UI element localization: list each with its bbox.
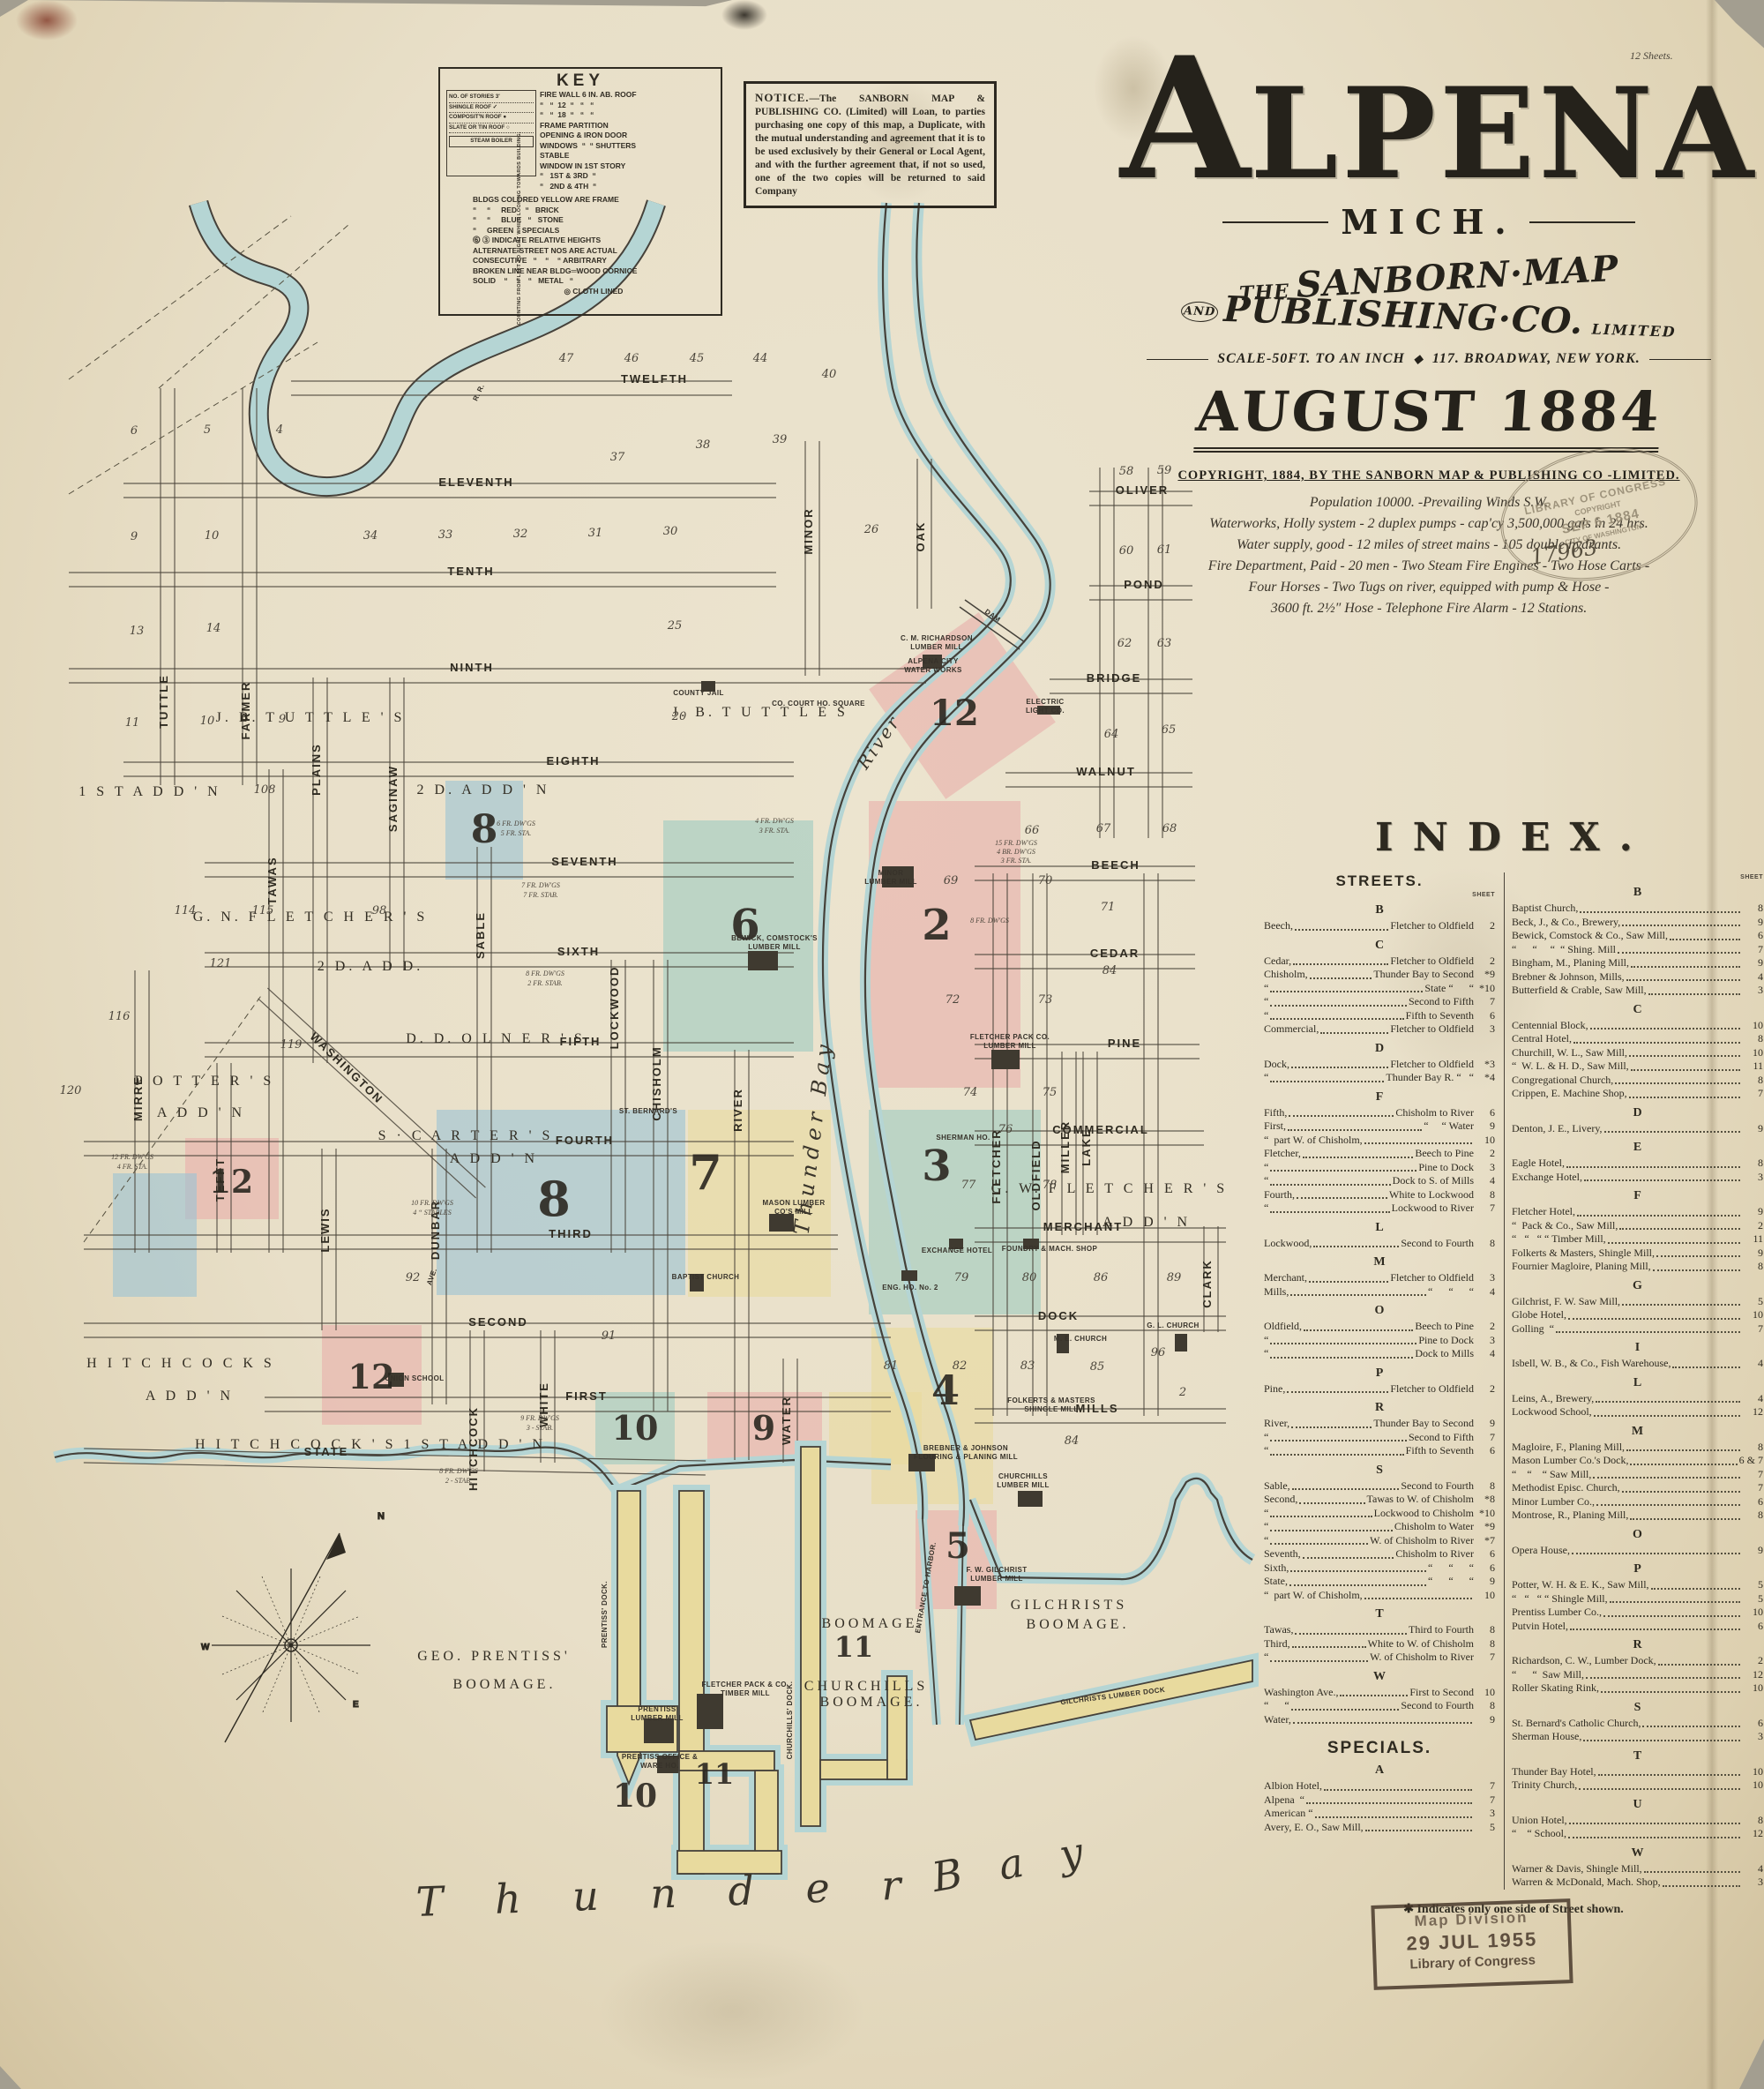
index-cell: Congregational Church, — [1512, 1074, 1613, 1088]
street-label: TWELFTH — [621, 372, 688, 386]
index-cell — [1572, 1553, 1740, 1554]
index-cell: 8 — [1742, 902, 1763, 916]
block-number: 69 — [944, 874, 959, 887]
index-row: Fifth,Chisholm to River6 — [1264, 1106, 1495, 1120]
index-cell: *4 — [1474, 1071, 1495, 1085]
index-cell: *10 — [1474, 982, 1495, 996]
index-cell: 8 — [1474, 1188, 1495, 1202]
block-number: 25 — [667, 619, 683, 633]
block-number: 10 — [200, 715, 215, 728]
index-cell: 10 — [1474, 1589, 1495, 1603]
index-cell: Mason Lumber Co.'s Dock, — [1512, 1454, 1628, 1468]
index-columns: STREETS. SHEET BBeech,Fletcher to Oldfie… — [1264, 872, 1763, 1890]
block-number: 2 — [1178, 1386, 1186, 1399]
index-row: Warner & Davis, Shingle Mill,4 — [1512, 1862, 1763, 1876]
rotated-label: CHURCHILLS' DOCK. — [786, 1681, 794, 1760]
index-cell: Exchange Hotel, — [1512, 1171, 1582, 1185]
block-number: 38 — [696, 438, 711, 452]
index-cell — [1608, 1242, 1740, 1244]
street-label: PLAINS — [310, 743, 323, 796]
index-cell: 8 — [1742, 1814, 1763, 1828]
publisher-line2: PUBLISHING·CO. — [1223, 288, 1584, 342]
index-row: Gilchrist, F. W. Saw Mill,5 — [1512, 1295, 1763, 1309]
poi-label: FOLKERTS & MASTERS — [1007, 1396, 1095, 1404]
poi-label: PRENTISS — [638, 1705, 676, 1713]
index-row: Commercial,Fletcher to Oldfield3 — [1264, 1022, 1495, 1037]
index-row: Bingham, M., Planing Mill,9 — [1512, 956, 1763, 970]
index-cell — [1270, 1543, 1368, 1545]
index-cell: Eagle Hotel, — [1512, 1157, 1565, 1171]
index-row: St. Bernard's Catholic Church,6 — [1512, 1717, 1763, 1731]
block-number: 85 — [1090, 1360, 1105, 1374]
index-cell: 10 — [1742, 1019, 1763, 1033]
index-cell: 9 — [1474, 1575, 1495, 1589]
index-cell: 10 — [1742, 1778, 1763, 1793]
index-cell: Dock to S. of Mills — [1393, 1174, 1474, 1188]
index-cell: Third to Fourth — [1409, 1623, 1474, 1637]
index-letter-heading: G — [1512, 1279, 1763, 1293]
street-label: LOCKWOOD — [608, 966, 621, 1050]
index-cell: Beech, — [1264, 919, 1293, 933]
index-cell: Second to Fifth — [1409, 1431, 1474, 1445]
index-row: Water,9 — [1264, 1713, 1495, 1727]
index-cell: 10 — [1742, 1046, 1763, 1060]
notice-body: —The SANBORN MAP & PUBLISHING CO. (Limit… — [755, 94, 985, 197]
index-row: Seventh,Chisholm to River6 — [1264, 1547, 1495, 1561]
index-cell: “ “ Water — [1424, 1119, 1474, 1134]
poi-label: F. W. GILCHRIST — [966, 1566, 1027, 1574]
street-label: THIRD — [549, 1227, 593, 1240]
index-cell: 9 — [1742, 1247, 1763, 1261]
index-cell: Oldfield, — [1264, 1320, 1302, 1334]
street-label: LAKE — [1080, 1127, 1093, 1165]
index-letter-heading: F — [1264, 1090, 1495, 1104]
index-cell: 8 — [1742, 1032, 1763, 1046]
block-number: 96 — [1151, 1346, 1166, 1359]
index-cell — [1603, 1615, 1740, 1617]
index-cell: 4 — [1742, 1862, 1763, 1876]
compass-w-label: W — [201, 1643, 211, 1652]
poi-label: EXCHANGE HOTEL — [922, 1247, 992, 1254]
index-cell: “ part W. of Chisholm, — [1264, 1589, 1363, 1603]
index-cell — [1556, 1331, 1740, 1333]
index-cell: 9 — [1474, 1119, 1495, 1134]
index-cell — [1270, 1018, 1403, 1020]
publisher-notice: NOTICE.—The SANBORN MAP & PUBLISHING CO.… — [744, 81, 997, 208]
index-row: Tawas,Third to Fourth8 — [1264, 1623, 1495, 1637]
index-cell: 6 — [1742, 929, 1763, 943]
dwelling-note: 8 FR. DW'GS — [970, 917, 1009, 925]
dwelling-note: 4 “ STABLES — [413, 1209, 451, 1217]
index-row: Exchange Hotel,3 — [1512, 1171, 1763, 1185]
poi-label: M. E. CHURCH — [1054, 1335, 1107, 1343]
block-number: 77 — [961, 1179, 976, 1192]
key-line: SOLID “ “ “ METAL “ — [473, 276, 714, 287]
index-cell — [1644, 1871, 1740, 1873]
rotated-label: AVE. — [425, 1267, 438, 1286]
index-cell — [1573, 1042, 1740, 1044]
index-cell: *10 — [1474, 1507, 1495, 1521]
index-cell: “ — [1264, 1534, 1268, 1548]
index-cell — [1653, 1269, 1740, 1271]
index-row: “Fifth to Seventh6 — [1264, 1444, 1495, 1458]
index-cell — [1303, 1557, 1394, 1559]
index-cell: Brebner & Johnson, Mills, — [1512, 970, 1625, 985]
index-cell: Fletcher, — [1264, 1147, 1301, 1161]
index-cell — [1365, 1830, 1472, 1831]
index-cell: Thunder Bay to Second — [1373, 968, 1474, 982]
index-cell: Montrose, R., Planing Mill, — [1512, 1509, 1628, 1523]
index-cell: 4 — [1742, 1357, 1763, 1371]
index-cell: Second to Fourth — [1401, 1479, 1474, 1494]
index-cell — [1291, 1426, 1372, 1428]
index-cell: 7 — [1742, 1322, 1763, 1337]
index-cell — [1651, 1588, 1740, 1590]
index-row: Warren & McDonald, Mach. Shop,3 — [1512, 1876, 1763, 1890]
index-cell: 7 — [1742, 1468, 1763, 1482]
index-cell: 7 — [1742, 1087, 1763, 1101]
index-cell: Bewick, Comstock & Co., Saw Mill, — [1512, 929, 1668, 943]
block-number: 47 — [558, 352, 574, 365]
index-cell — [1270, 1440, 1407, 1441]
index-cell: 12 — [1742, 1827, 1763, 1841]
index-letter-heading: S — [1512, 1701, 1763, 1715]
index-cell: Sherman House, — [1512, 1730, 1581, 1744]
index-cell — [1292, 1646, 1366, 1648]
index-cell — [1340, 1695, 1408, 1696]
building-footprint — [954, 1586, 981, 1606]
index-cell — [1642, 1726, 1740, 1727]
block-number: 84 — [1102, 964, 1117, 977]
index-cell — [1629, 1097, 1740, 1098]
addition-label: G. W. F L E T C H E R ' S — [991, 1181, 1228, 1196]
key-line: CONSECUTIVE “ “ “ ARBITRARY — [473, 256, 714, 266]
index-cell — [1596, 1504, 1740, 1506]
index-cell — [1295, 929, 1388, 931]
index-cell: Cedar, — [1264, 955, 1291, 969]
index-letter-heading: W — [1512, 1846, 1763, 1861]
street-label: BEECH — [1091, 858, 1140, 872]
index-cell — [1306, 1802, 1472, 1804]
index-cell: 7 — [1474, 1793, 1495, 1808]
index-cell — [1601, 1691, 1740, 1693]
index-cell — [1304, 1329, 1413, 1331]
index-cell: 6 — [1742, 1620, 1763, 1634]
street-label: WALNUT — [1076, 765, 1136, 778]
index-letter-heading: B — [1512, 886, 1763, 900]
index-letter-heading: T — [1512, 1749, 1763, 1763]
index-cell: 6 — [1742, 1495, 1763, 1509]
addition-label: H I T C H C O C K S — [86, 1356, 275, 1371]
publisher-limited: LIMITED — [1591, 320, 1677, 340]
index-cell: “ Pack & Co., Saw Mill, — [1512, 1219, 1618, 1233]
key-line: STABLE — [540, 151, 714, 161]
dwelling-note: 7 FR. DW'GS — [521, 881, 560, 889]
index-cell: 3 — [1742, 1730, 1763, 1744]
index-cell — [1270, 1454, 1403, 1456]
index-cell: 9 — [1742, 1544, 1763, 1558]
index-cell: Prentiss Lumber Co., — [1512, 1606, 1602, 1620]
street-label: NINTH — [450, 661, 494, 674]
index-cell: 11 — [1742, 1232, 1763, 1247]
index-row: Putvin Hotel,6 — [1512, 1620, 1763, 1634]
index-cell — [1270, 1211, 1389, 1213]
index-cell: 9 — [1742, 916, 1763, 930]
block-number: 62 — [1117, 637, 1132, 650]
poi-label: FLETCHER PACK CO. — [970, 1033, 1050, 1041]
buildings-list: BBaptist Church,8Beck, J., & Co., Brewer… — [1512, 886, 1763, 1890]
index-letter-heading: O — [1264, 1304, 1495, 1318]
index-cell: “ — [1264, 1651, 1268, 1665]
key-line: BROKEN LINE NEAR BLDG═WOOD CORNICE — [473, 266, 714, 277]
index-cell: 12 — [1742, 1668, 1763, 1682]
index-cell: 8 — [1742, 1157, 1763, 1171]
publisher-and: AND — [1181, 301, 1219, 322]
index-cell: “ — [1264, 1347, 1268, 1361]
block-number: 64 — [1104, 728, 1119, 741]
index-cell: 7 — [1742, 943, 1763, 957]
index-row: “ “ Saw Mill,12 — [1512, 1668, 1763, 1682]
index-cell: “ — [1264, 1507, 1268, 1521]
block-number: 98 — [372, 904, 387, 917]
index-cell: 3 — [1742, 1876, 1763, 1890]
index-cell: 3 — [1742, 984, 1763, 998]
sanborn-map-sheet: 86212873412121095111110TWELFTHELEVENTHTE… — [0, 0, 1764, 2089]
index-cell: “ W. L. & H. D., Saw Mill, — [1512, 1059, 1629, 1074]
index-letter-heading: O — [1512, 1528, 1763, 1542]
addition-label: G. N. F L E T C H E R ' S — [193, 910, 429, 925]
index-cell: Pine to Dock — [1418, 1161, 1474, 1175]
index-row: Eagle Hotel,8 — [1512, 1157, 1763, 1171]
index-row: Fletcher Hotel,9 — [1512, 1205, 1763, 1219]
water-body-label: T h u n d e r — [415, 1861, 921, 1926]
index-cell: Globe Hotel, — [1512, 1308, 1566, 1322]
index-cell: State “ “ — [1424, 982, 1474, 996]
index-cell — [1631, 1069, 1740, 1071]
dwelling-note: 15 FR. DW'GS — [995, 839, 1037, 847]
index-cell — [1672, 1366, 1740, 1368]
addition-label: S · C A R T E R ' S — [378, 1128, 554, 1143]
poi-label: BAPTIST CHURCH — [672, 1273, 740, 1281]
street-label: BRIDGE — [1087, 671, 1142, 685]
index-cell — [1290, 1570, 1426, 1572]
index-cell: 4 — [1474, 1285, 1495, 1299]
index-cell: Golling “ — [1512, 1322, 1554, 1337]
district-number: 8 — [471, 807, 498, 852]
index-cell: 9 — [1742, 1122, 1763, 1136]
index-letter-heading: E — [1512, 1141, 1763, 1155]
index-row: “ Pack & Co., Saw Mill,2 — [1512, 1219, 1763, 1233]
addition-label: J. B. T U T T L E ' S — [216, 710, 406, 725]
index-row: Globe Hotel,10 — [1512, 1308, 1763, 1322]
index-cell: Seventh, — [1264, 1547, 1301, 1561]
index-cell: “ “ “ — [1428, 1285, 1474, 1299]
index-row: “ “ School,12 — [1512, 1827, 1763, 1841]
index-row: Richardson, C. W., Lumber Dock,2 — [1512, 1654, 1763, 1668]
district-number: 7 — [689, 1144, 722, 1201]
key-line: ◎ CLOTH LINED — [473, 287, 714, 297]
poi-label: CHURCHILLS — [998, 1472, 1048, 1480]
index-cell — [1270, 991, 1423, 992]
index-cell: 2 — [1474, 955, 1495, 969]
index-cell — [1622, 1491, 1740, 1493]
compass-e-label: E — [353, 1700, 361, 1710]
index-cell: “ “ “ — [1428, 1561, 1474, 1576]
index-row: Crippen, E. Machine Shop,7 — [1512, 1087, 1763, 1101]
block-number: 84 — [1065, 1434, 1080, 1448]
index-cell: “ — [1264, 1334, 1268, 1348]
index-cell: Mills, — [1264, 1285, 1289, 1299]
block-number: 30 — [663, 525, 678, 538]
index-cell: 3 — [1474, 1271, 1495, 1285]
stat-line: Four Horses - Two Tugs on river, equippe… — [1120, 577, 1738, 598]
poi-label: CO. COURT HO. SQUARE — [772, 700, 865, 708]
index-cell: “ — [1264, 995, 1268, 1009]
index-row: Fletcher,Beech to Pine2 — [1264, 1147, 1495, 1161]
index-cell: Lockwood to Chisholm — [1374, 1507, 1474, 1521]
key-line: “ “ RED “ BRICK — [473, 206, 714, 216]
index-cell: “ “ School, — [1512, 1827, 1566, 1841]
block-number: 92 — [406, 1271, 421, 1284]
index-cell: 3 — [1742, 1171, 1763, 1185]
index-row: Pine,Fletcher to Oldfield2 — [1264, 1382, 1495, 1396]
index-cell: 2 — [1474, 1382, 1495, 1396]
block-number: 83 — [1020, 1359, 1035, 1373]
index-cell: Fletcher to Oldfield — [1390, 1058, 1474, 1072]
streets-heading: STREETS. — [1264, 872, 1495, 890]
index-cell: Fletcher to Oldfield — [1390, 955, 1474, 969]
dwelling-note: 9 FR. DW'GS — [520, 1414, 559, 1422]
poi-label: UNION SCHOOL — [385, 1374, 444, 1382]
index-cell — [1629, 1055, 1740, 1057]
map-key: KEY NO. OF STORIES 3' SHINGLE ROOF ✓ COM… — [438, 67, 722, 316]
index-cell — [1630, 1518, 1740, 1520]
poi-label: G. L. CHURCH — [1147, 1322, 1199, 1329]
district-number: 10 — [612, 1408, 659, 1448]
index-cell: “ “ — [1264, 1699, 1289, 1713]
index-letter-heading: R — [1512, 1638, 1763, 1652]
index-cell: Washington Ave., — [1264, 1686, 1338, 1700]
index-cell — [1287, 1391, 1388, 1393]
index-row: Washington Ave.,First to Second10 — [1264, 1686, 1495, 1700]
district-number: 2 — [922, 901, 951, 950]
dwelling-note: 3 - STAB. — [526, 1424, 553, 1432]
index-row: River,Thunder Bay to Second9 — [1264, 1417, 1495, 1431]
index-cell — [1295, 1633, 1407, 1635]
index-cell: Dock, — [1264, 1058, 1289, 1072]
index-cell: American “ — [1264, 1807, 1313, 1821]
index-cell: “ “ Saw Mill, — [1512, 1668, 1584, 1682]
rule-right — [1529, 221, 1635, 223]
index-cell: White to W. of Chisholm — [1368, 1637, 1474, 1651]
poi-label: ALPENA CITY — [908, 657, 959, 665]
index-cell — [1293, 963, 1388, 965]
index-cell: 5 — [1474, 1821, 1495, 1835]
index-row: Opera House,9 — [1512, 1544, 1763, 1558]
index-cell: Chisholm, — [1264, 968, 1308, 982]
index-cell: 6 — [1474, 1444, 1495, 1458]
index-cell: “ — [1264, 1161, 1268, 1175]
addition-label: GEO. PRENTISS' — [417, 1649, 571, 1664]
index-cell: Pine to Dock — [1418, 1334, 1474, 1348]
poi-label: LUMBER MILL — [910, 643, 963, 651]
index-cell — [1270, 1170, 1416, 1172]
block-number: 72 — [946, 993, 960, 1007]
index-cell: 9 — [1474, 1713, 1495, 1727]
index-cell: 10 — [1742, 1765, 1763, 1779]
index-cell — [1570, 1629, 1740, 1630]
index-cell: 6 — [1474, 1561, 1495, 1576]
index-cell: “ — [1264, 1444, 1268, 1458]
index-cell: Richardson, C. W., Lumber Dock, — [1512, 1654, 1656, 1668]
poi-label: LUMBER MILL — [997, 1481, 1050, 1489]
index-row: Baptist Church,8 — [1512, 902, 1763, 916]
sheet-column-heading: SHEET — [1512, 874, 1763, 880]
block-number: 115 — [252, 904, 274, 917]
addition-label: P O T T E R ' S — [135, 1074, 274, 1089]
index-cell — [1288, 1129, 1422, 1131]
poi-label: LUMBER MILL — [748, 943, 801, 951]
block-number: 45 — [689, 352, 705, 365]
index-row: Albion Hotel,7 — [1264, 1779, 1495, 1793]
building-footprint — [748, 951, 778, 970]
index-cell: Avery, E. O., Saw Mill, — [1264, 1821, 1364, 1835]
street-label: EIGHTH — [546, 754, 600, 767]
index-cell — [1293, 1722, 1472, 1724]
scale-row: SCALE-50FT. TO AN INCH ◆ 117. BROADWAY, … — [1120, 351, 1738, 367]
addition-label: H I T C H C O C K ' S 1 S T A D D ' N — [195, 1437, 546, 1452]
index-row: Beck, J., & Co., Brewery,9 — [1512, 916, 1763, 930]
district-number: 11 — [695, 1757, 735, 1791]
street-label: TUTTLE — [157, 674, 170, 729]
index-cell: 9 — [1742, 956, 1763, 970]
index-cell: Chisholm to River — [1395, 1547, 1474, 1561]
index-cell: Albion Hotel, — [1264, 1779, 1322, 1793]
index-row: Fournier Magloire, Planing Mill,8 — [1512, 1260, 1763, 1274]
key-bottom-lines: BLDGS COLORED YELLOW ARE FRAME “ “ RED “… — [473, 195, 714, 296]
addition-label: A D D ' N — [1102, 1215, 1191, 1230]
index-row: Merchant,Fletcher to Oldfield3 — [1264, 1271, 1495, 1285]
key-line: ⓺ ③ INDICATE RELATIVE HEIGHTS — [473, 236, 714, 246]
index-cell: 2 — [1474, 919, 1495, 933]
street-label: RIVER — [731, 1088, 744, 1132]
index-cell: Baptist Church, — [1512, 902, 1578, 916]
dwelling-note: 3 FR. STA. — [1000, 857, 1032, 865]
index-letter-heading: U — [1512, 1798, 1763, 1812]
poi-label: FOUNDRY & MACH. SHOP — [1002, 1245, 1098, 1253]
index-cell: *3 — [1474, 1058, 1495, 1072]
district-number: 8 — [537, 1171, 571, 1227]
index-cell — [1626, 1449, 1740, 1451]
index-cell: 3 — [1474, 1807, 1495, 1821]
key-line: “ “ BLUE “ STONE — [473, 215, 714, 226]
index-cell: “ part W. of Chisholm, — [1264, 1134, 1363, 1148]
street-label: MINOR — [802, 507, 815, 554]
block-number: 13 — [130, 625, 145, 638]
street-label: FIRST — [565, 1389, 608, 1403]
index-cell — [1568, 1837, 1740, 1838]
block-number: 32 — [513, 528, 528, 541]
index-cell — [1270, 1184, 1390, 1186]
water-body-label: River — [852, 711, 905, 774]
diamond-ornament: ◆ — [1414, 352, 1424, 366]
index-cell: Union Hotel, — [1512, 1814, 1567, 1828]
key-line: FRAME PARTITION — [540, 121, 714, 131]
index-letter-heading: I — [1512, 1341, 1763, 1355]
index-row: Isbell, W. B., & Co., Fish Warehouse,4 — [1512, 1357, 1763, 1371]
key-line: “ 1ST & 3RD “ — [540, 171, 714, 182]
index-row: Montrose, R., Planing Mill,8 — [1512, 1509, 1763, 1523]
